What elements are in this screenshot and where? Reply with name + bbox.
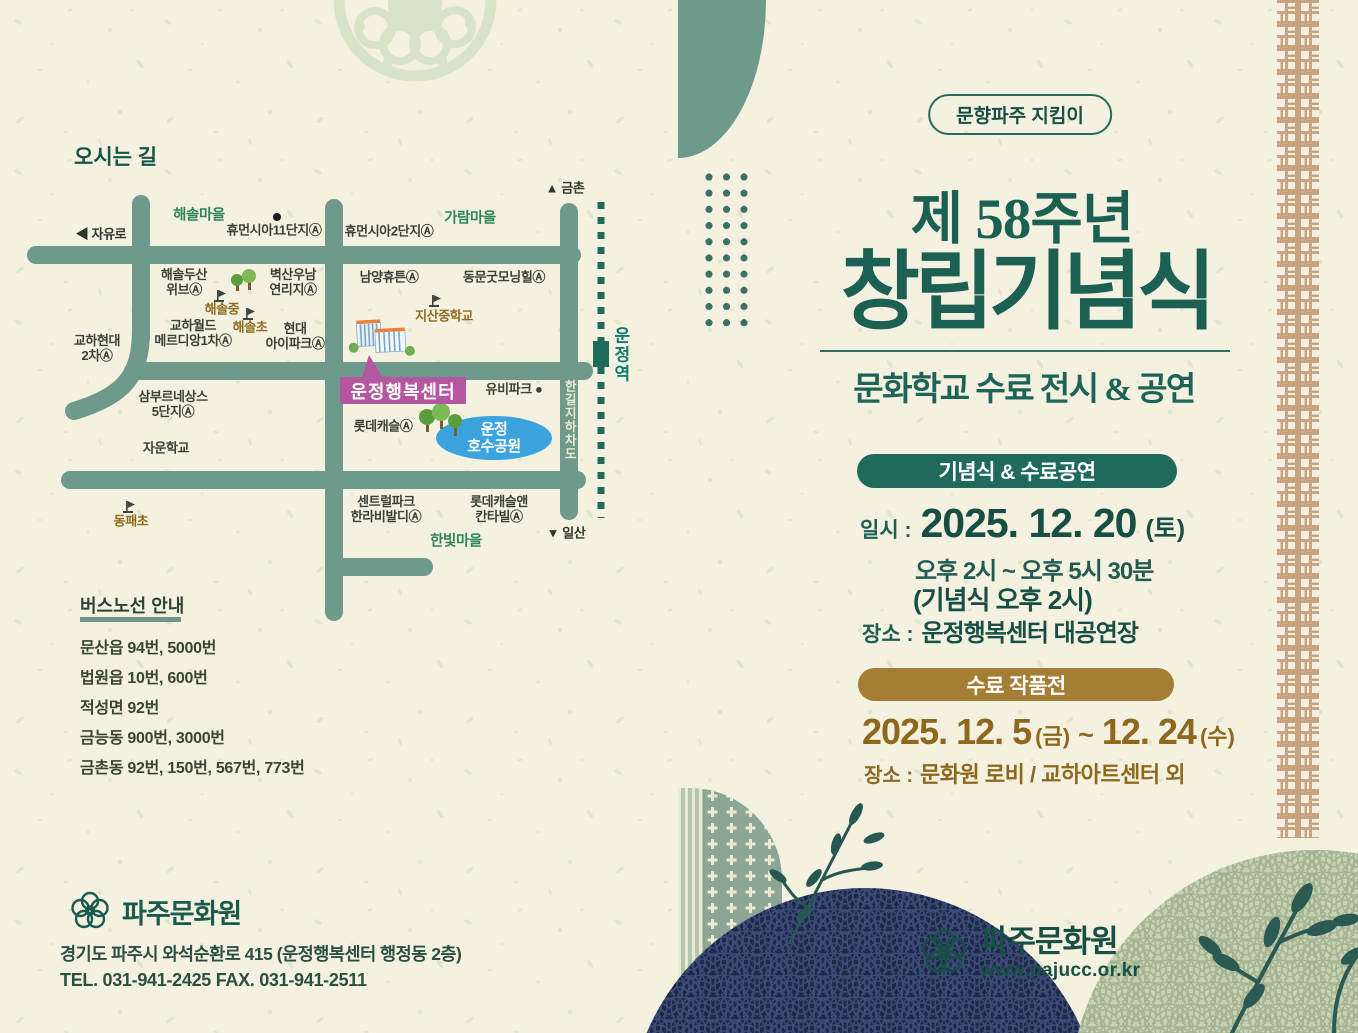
directions-title: 오시는 길 [74, 141, 157, 171]
callout-pointer [362, 355, 383, 378]
dot-grid-decoration [701, 169, 755, 332]
exhibition-end-date: 12. 24 [1102, 711, 1196, 753]
bus-route-line-1: 법원읍 10번, 600번 [80, 664, 305, 694]
tel-fax: TEL. 031-941-2425 FAX. 031-941-2511 [60, 970, 367, 991]
ceremony-date-row: 일시 : 2025. 12. 20 (토) [860, 500, 1185, 547]
flower-logo-icon [68, 889, 112, 933]
poster: 운정행복센터 해솔마을◀ 자유로휴먼시아11단지Ⓐ해솔두산 위브Ⓐ벽산우남 연리… [0, 0, 1358, 1033]
exhibition-place: 문화원 로비 / 교하아트센터 외 [920, 757, 1185, 789]
bus-route-line-3: 금능동 900번, 3000번 [80, 724, 305, 754]
top-badge: 문향파주 지킴이 [928, 94, 1112, 135]
subtitle: 문화학교 수료 전시 & 공연 [853, 362, 1195, 410]
footer-right: 파주문화원 www.pajucc.or.kr [918, 924, 1140, 982]
org-website: www.pajucc.or.kr [980, 960, 1140, 982]
flower-logo-icon [918, 924, 970, 980]
bus-route-line-0: 문산읍 94번, 5000번 [80, 634, 305, 664]
bus-route-list: 문산읍 94번, 5000번법원읍 10번, 600번적성면 92번금능동 90… [80, 634, 305, 784]
org-name: 파주문화원 [122, 892, 241, 931]
bus-route-line-2: 적성면 92번 [80, 694, 305, 724]
date-label: 일시 : [860, 514, 911, 544]
org-name: 파주문화원 [980, 924, 1140, 960]
ceremony-place-row: 장소 : 운정행복센터 대공연장 [862, 613, 1138, 648]
place-label: 장소 : [862, 618, 913, 648]
bus-route-line-4: 금촌동 92번, 150번, 567번, 773번 [80, 754, 305, 784]
ceremony-time-note: (기념식 오후 2시) [913, 580, 1092, 617]
exhibition-start-date: 2025. 12. 5 [862, 711, 1031, 753]
exhibition-date-row: 2025. 12. 5 (금) ~ 12. 24 (수) [862, 711, 1235, 753]
title-divider [820, 350, 1230, 352]
community-center-callout: 운정행복센터 [340, 377, 466, 404]
footer-left: 파주문화원 [68, 889, 241, 933]
ceremony-banner: 기념식 & 수료공연 [857, 454, 1177, 488]
ceremony-place: 운정행복센터 대공연장 [921, 613, 1137, 648]
ceremony-date: 2025. 12. 20 [920, 500, 1136, 547]
exhibition-banner: 수료 작품전 [858, 668, 1174, 701]
place-label: 장소 : [864, 759, 913, 788]
exhibition-place-row: 장소 : 문화원 로비 / 교하아트센터 외 [864, 757, 1185, 789]
bus-info-title: 버스노선 안내 [80, 592, 184, 618]
lattice-border-decoration [1274, 0, 1322, 838]
date-range-tilde: ~ [1074, 720, 1098, 751]
address: 경기도 파주시 와석순환로 415 (운정행복센터 행정동 2층) [60, 941, 461, 966]
bus-title-underline [80, 617, 181, 622]
mandala-ornament [330, 0, 590, 110]
exhibition-start-day: (금) [1035, 719, 1070, 751]
exhibition-end-day: (수) [1200, 719, 1235, 751]
branch-decoration-left [752, 792, 912, 942]
ceremony-day: (토) [1145, 509, 1185, 545]
branch-decoration-right [1162, 870, 1358, 1033]
title-line2: 창립기념식 [841, 243, 1212, 342]
